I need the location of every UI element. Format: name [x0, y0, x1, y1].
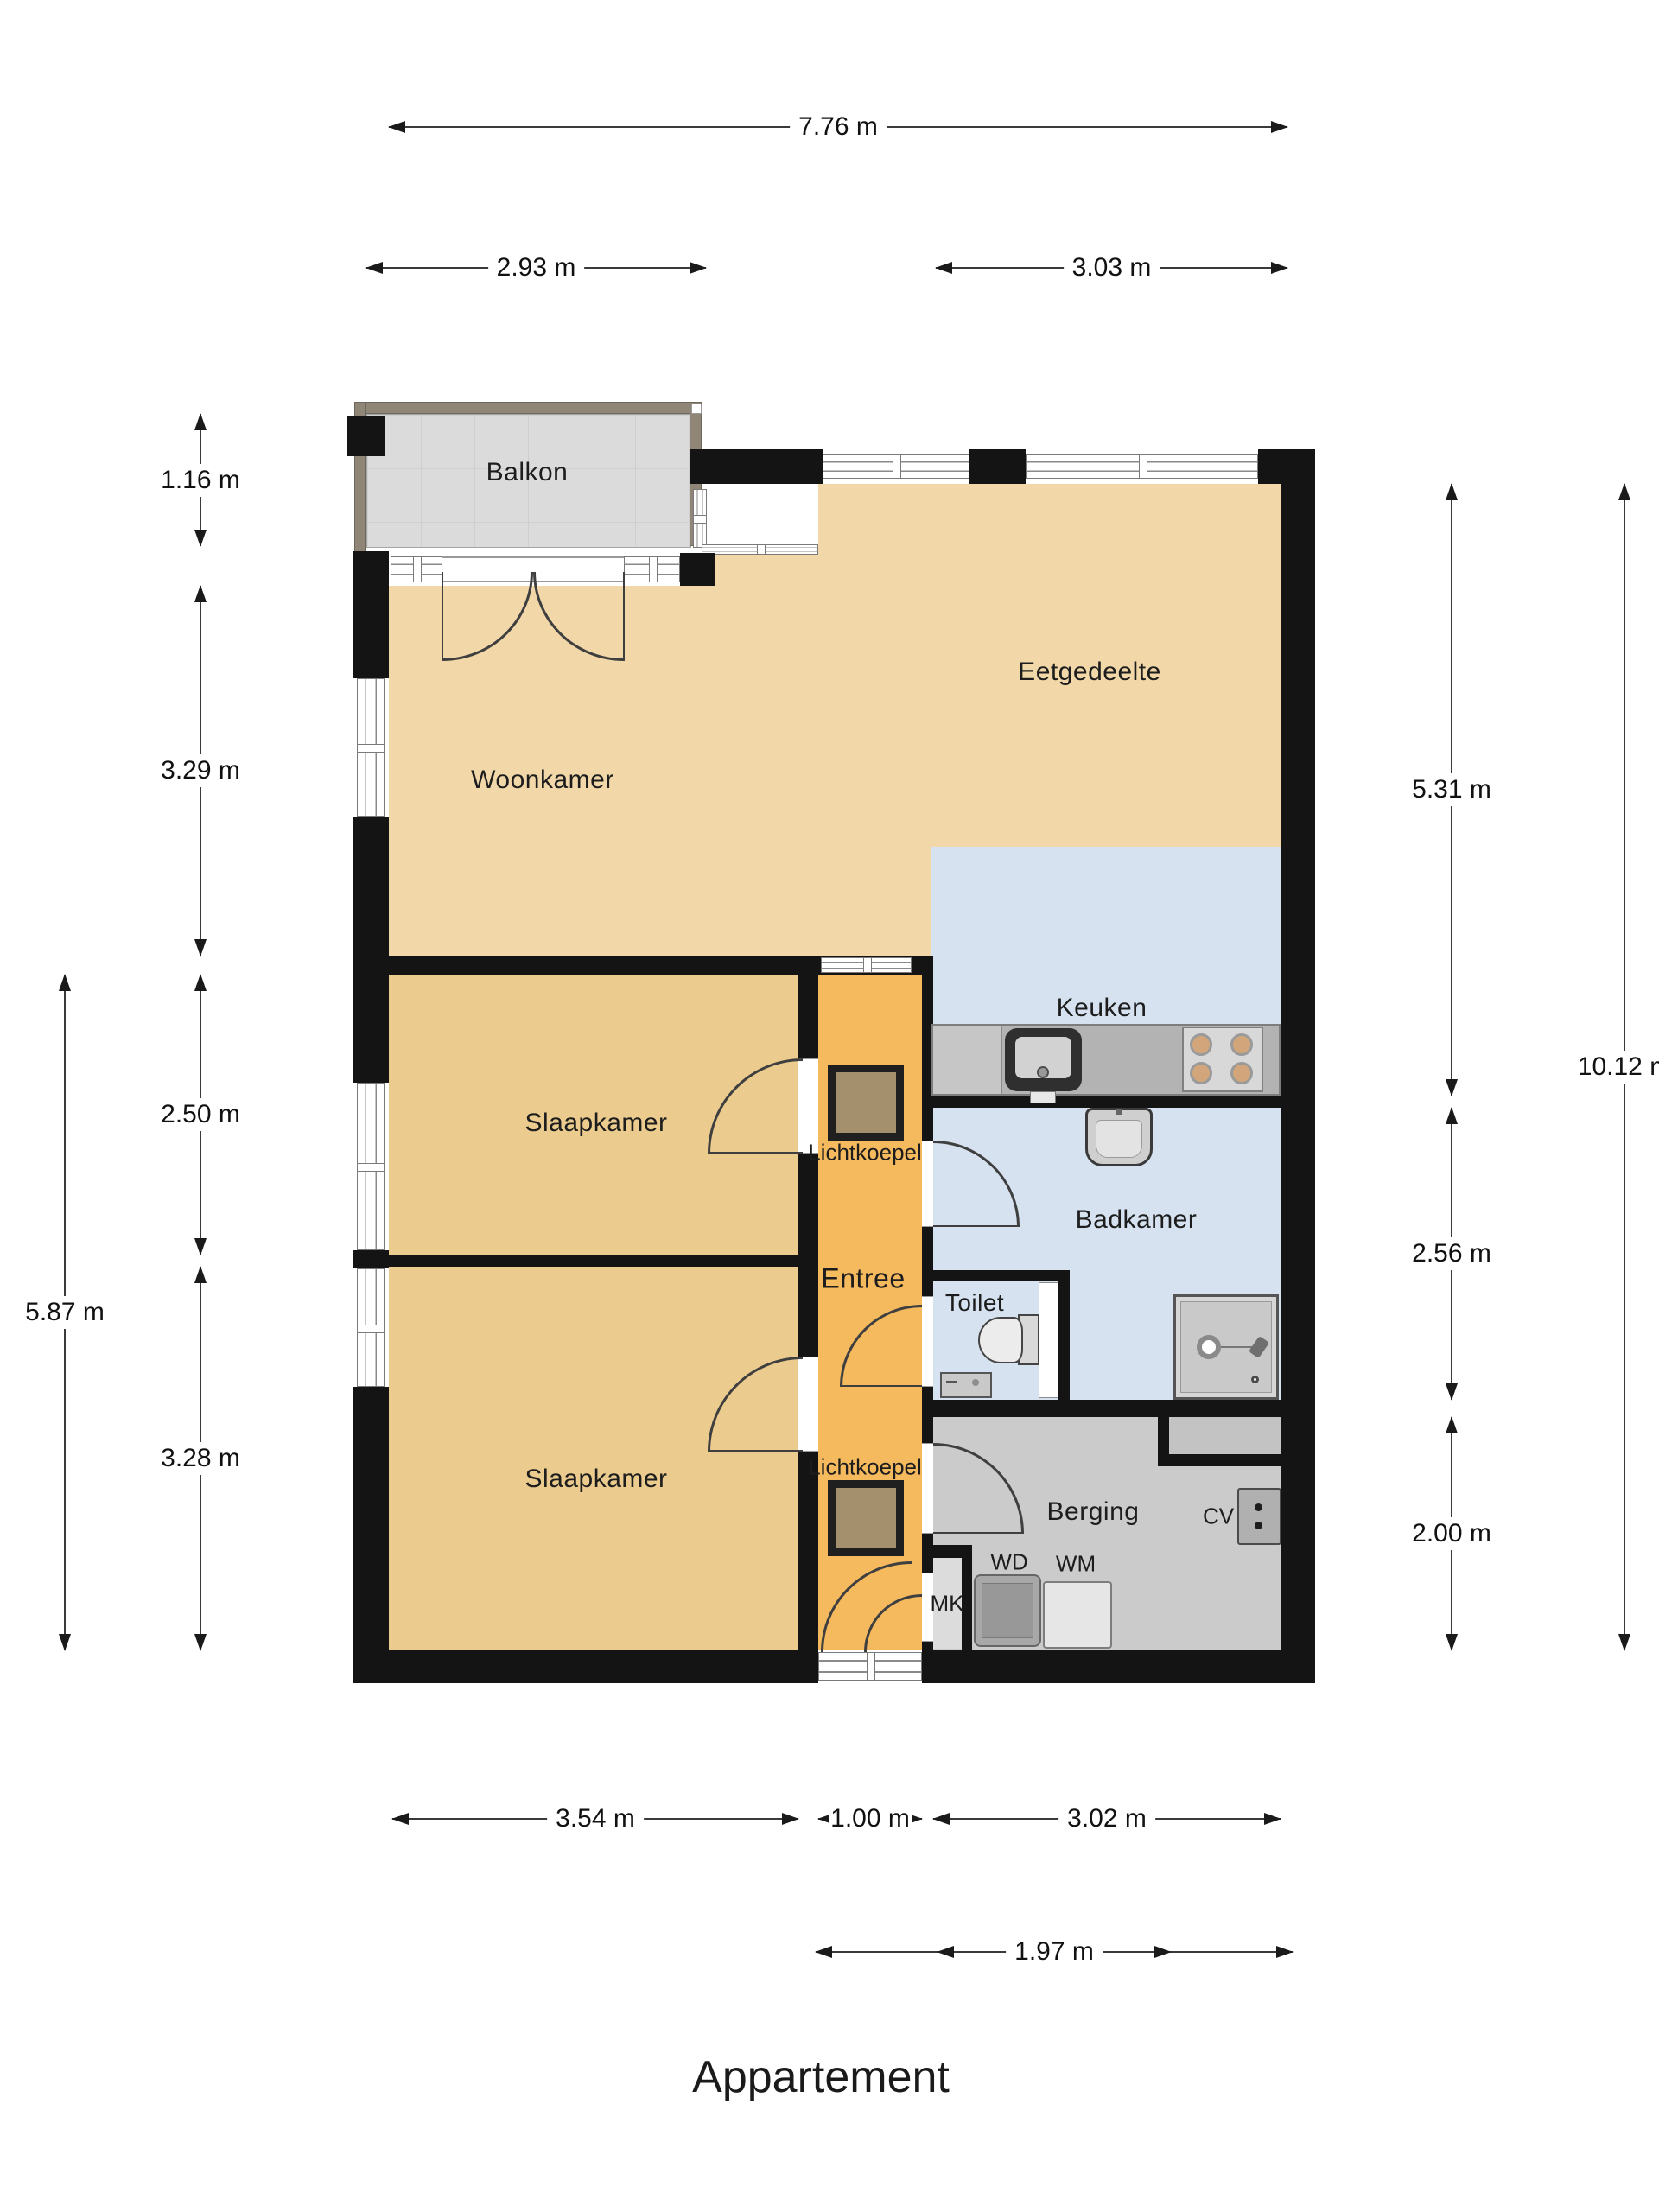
dim-top-left-label: 2.93 m [488, 251, 585, 284]
slaapkamer1-door-leaf [708, 1152, 803, 1154]
wall-balcony-corner-block [347, 416, 385, 456]
floorplan-page: Balkon Woonkamer Eetgedeelte Keuken Slaa… [0, 0, 1659, 2212]
entree-label: Entree [821, 1263, 905, 1295]
balkon-rail-corner-post [691, 404, 702, 414]
cv-label: CV [1203, 1503, 1234, 1530]
balcony-door-leaf-left [442, 572, 443, 661]
dim-right-storage: 2.00 m [1439, 1417, 1465, 1650]
window-notch-horizontal [702, 544, 818, 555]
wall-shaft-south [1158, 1454, 1281, 1466]
lichtkoepel2-label: Lichtkoepel [808, 1454, 922, 1481]
dim-bottom-inner-arrow-left [937, 1946, 954, 1958]
wall-top-seg1 [690, 449, 823, 484]
shower-drain [1251, 1376, 1259, 1383]
window-top-1 [823, 454, 969, 479]
wall-bottom-left [353, 1650, 818, 1683]
door-opening-toilet [922, 1296, 933, 1387]
woonkamer-floor-east [818, 847, 931, 956]
door-opening-badkamer [922, 1141, 933, 1227]
window-slaapkamer2 [357, 1268, 385, 1387]
slaapkamer2-door-leaf [708, 1450, 803, 1452]
wall-entree-east-4 [922, 1534, 933, 1573]
wall-bottom-right [922, 1650, 1315, 1683]
kitchen-counter-cabinet [933, 1026, 1002, 1094]
wall-entree-west-2 [798, 1154, 818, 1357]
plan-title: Appartement [692, 2051, 950, 2103]
wall-toilet-east [1058, 1281, 1070, 1400]
shaft-niche [1169, 1417, 1281, 1454]
balcony-door-leaf-right [623, 572, 625, 661]
wall-bedroom-divider [389, 1255, 818, 1267]
dim-bottom-inner-arrow-right [1154, 1946, 1172, 1958]
toilet-label: Toilet [945, 1289, 1004, 1317]
lichtkoepel1-skylight [828, 1065, 904, 1141]
slaapkamer2-label: Slaapkamer [524, 1465, 667, 1494]
badkamer-basin-inner [1096, 1120, 1142, 1158]
cv-boiler-dot-1 [1255, 1503, 1262, 1511]
dim-left-total: 5.87 m [52, 975, 78, 1650]
dim-right-bath: 2.56 m [1439, 1108, 1465, 1400]
window-notch-vertical [693, 489, 707, 548]
berging-door-leaf [933, 1532, 1024, 1534]
lichtkoepel1-label: Lichtkoepel [808, 1140, 922, 1166]
lichtkoepel2-skylight [828, 1480, 904, 1556]
slaapkamer1-label: Slaapkamer [524, 1109, 667, 1138]
wall-band-block-right [680, 553, 715, 586]
badkamer-label: Badkamer [1076, 1205, 1198, 1235]
stove-burner-3 [1190, 1062, 1212, 1084]
stove-burner-4 [1230, 1062, 1253, 1084]
wall-toilet-top [933, 1270, 1070, 1281]
balkon-rail-top [354, 402, 702, 414]
wall-mk-top [933, 1545, 972, 1558]
window-band-right [624, 556, 680, 582]
dim-left-bed1: 2.50 m [188, 975, 213, 1255]
dim-top-total-label: 7.76 m [790, 111, 887, 143]
wm-label: WM [1056, 1551, 1096, 1578]
stove-burner-2 [1230, 1033, 1253, 1056]
toilet-bowl [978, 1317, 1023, 1363]
cv-boiler-dot-2 [1255, 1522, 1262, 1529]
dim-left-total-label: 5.87 m [16, 1296, 113, 1329]
woonkamer-label: Woonkamer [471, 766, 614, 795]
mk-label: MK [931, 1591, 964, 1618]
kitchen-faucet [1030, 1091, 1056, 1103]
dim-right-upper: 5.31 m [1439, 484, 1465, 1096]
dim-right-total: 10.12 m [1611, 484, 1637, 1650]
wall-keuken-bottom [931, 1096, 1281, 1108]
dim-bottom-storage-label: 3.02 m [1058, 1802, 1155, 1835]
window-top-2 [1026, 454, 1258, 479]
wall-left-seg3 [353, 1250, 389, 1268]
wall-badkamer-bottom [922, 1400, 1281, 1417]
dim-left-bed2-label: 3.28 m [152, 1442, 249, 1475]
dim-right-bath-label: 2.56 m [1403, 1237, 1500, 1270]
cv-boiler [1237, 1488, 1281, 1545]
wall-right [1281, 449, 1315, 1682]
dim-top-right-label: 3.03 m [1064, 251, 1160, 284]
dim-bottom-hall-label: 1.00 m [829, 1802, 912, 1835]
window-slaapkamer1 [357, 1083, 385, 1250]
wd-appliance-inner [982, 1583, 1033, 1638]
wall-entree-west-3 [798, 1452, 818, 1650]
kitchen-sink-drain [1037, 1066, 1049, 1078]
dim-bottom-hall: 1.00 m [818, 1806, 922, 1832]
toilet-basin-drain [972, 1379, 979, 1386]
shower-head [1197, 1335, 1221, 1359]
glass-panel-entree-north [821, 957, 912, 973]
toilet-door-leaf [1039, 1282, 1058, 1398]
dim-left-balcony: 1.16 m [188, 414, 213, 546]
toilet-basin [940, 1372, 992, 1398]
dim-left-living-label: 3.29 m [152, 754, 249, 787]
toilet-door-leaf-line [840, 1385, 922, 1387]
dim-right-upper-label: 5.31 m [1403, 773, 1500, 806]
window-band-left [391, 556, 442, 582]
dim-bottom-bed-label: 3.54 m [547, 1802, 644, 1835]
front-door-threshold [818, 1652, 922, 1681]
dim-top-right: 3.03 m [936, 255, 1287, 281]
toilet-basin-tap [946, 1381, 957, 1383]
slaapkamer2-floor [389, 1267, 798, 1650]
wall-entree-east-5 [922, 1642, 933, 1650]
badkamer-door-leaf [933, 1225, 1020, 1227]
window-woonkamer [357, 678, 385, 817]
badkamer-basin-tap [1116, 1109, 1122, 1115]
dim-bottom-inner: 1.97 m [816, 1939, 1293, 1965]
stove-burner-1 [1190, 1033, 1212, 1056]
keuken-label: Keuken [1057, 994, 1147, 1023]
wm-appliance [1043, 1581, 1112, 1649]
dim-left-bed1-label: 2.50 m [152, 1098, 249, 1131]
wall-entree-east-2 [922, 1227, 933, 1296]
dim-left-bed2: 3.28 m [188, 1267, 213, 1650]
wall-left-seg4 [353, 1387, 389, 1682]
dim-top-left: 2.93 m [366, 255, 706, 281]
wall-top-pillar [969, 449, 1026, 484]
dim-left-living: 3.29 m [188, 586, 213, 956]
dim-top-total: 7.76 m [389, 114, 1287, 140]
wd-label: WD [990, 1549, 1027, 1576]
dim-bottom-storage: 3.02 m [933, 1806, 1281, 1832]
balkon-label: Balkon [486, 458, 569, 487]
dim-right-storage-label: 2.00 m [1403, 1517, 1500, 1550]
door-opening-berging [922, 1443, 933, 1534]
dim-right-total-label: 10.12 m [1569, 1051, 1659, 1084]
wall-left-seg2 [353, 817, 389, 1083]
dim-bottom-inner-label: 1.97 m [1006, 1935, 1103, 1968]
wall-entree-west-1 [798, 956, 818, 1058]
dim-bottom-bed: 3.54 m [392, 1806, 798, 1832]
eetgedeelte-label: Eetgedeelte [1018, 658, 1161, 687]
wall-left-seg1 [353, 551, 389, 678]
dim-left-balcony-label: 1.16 m [152, 464, 249, 497]
berging-label: Berging [1047, 1497, 1140, 1527]
